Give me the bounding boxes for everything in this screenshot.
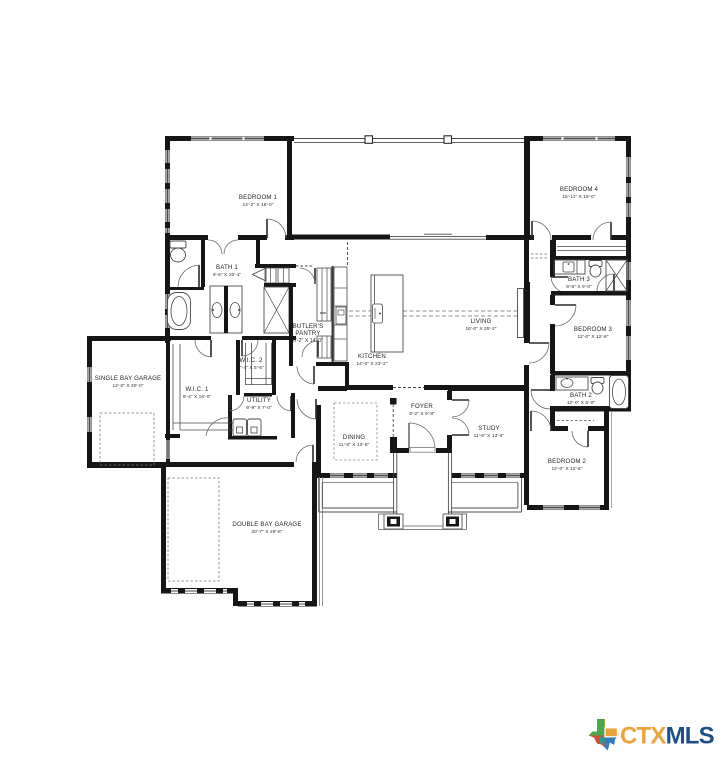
svg-text:BEDROOM 3: BEDROOM 3	[574, 326, 613, 333]
svg-text:BATH 3: BATH 3	[568, 276, 590, 283]
svg-text:BEDROOM 4: BEDROOM 4	[560, 186, 599, 193]
svg-text:FOYER: FOYER	[411, 403, 433, 410]
svg-text:KITCHEN: KITCHEN	[358, 353, 386, 360]
svg-text:11'-6" X 13'-6": 11'-6" X 13'-6"	[474, 433, 505, 439]
svg-text:9'-6" X 9'-0": 9'-6" X 9'-0"	[566, 284, 592, 290]
svg-text:15'-11" X 16'-0": 15'-11" X 16'-0"	[562, 194, 596, 200]
svg-text:BEDROOM 1: BEDROOM 1	[239, 194, 278, 201]
svg-text:9'-9" X 7'-0": 9'-9" X 7'-0"	[246, 405, 272, 411]
svg-text:CTXMLS: CTXMLS	[620, 723, 715, 750]
svg-text:DINING: DINING	[343, 434, 365, 441]
svg-text:14'-2" X 16'-0": 14'-2" X 16'-0"	[242, 202, 273, 208]
svg-text:W.I.C. 2: W.I.C. 2	[239, 357, 263, 364]
svg-text:DOUBLE BAY GARAGE: DOUBLE BAY GARAGE	[232, 521, 301, 528]
svg-text:12'-0" X 20'-0": 12'-0" X 20'-0"	[112, 383, 143, 389]
svg-text:UTILITY: UTILITY	[247, 397, 271, 404]
svg-text:BATH 1: BATH 1	[216, 264, 238, 271]
svg-text:12'-0" X 5'-0": 12'-0" X 5'-0"	[567, 400, 596, 406]
svg-text:9'-4" X 16'-0": 9'-4" X 16'-0"	[183, 394, 212, 400]
svg-text:SINGLE BAY GARAGE: SINGLE BAY GARAGE	[95, 375, 162, 382]
svg-text:12'-0" X 12'-6": 12'-0" X 12'-6"	[577, 334, 608, 340]
svg-text:BEDROOM 2: BEDROOM 2	[548, 458, 587, 465]
svg-text:20'-7" X 29'-8": 20'-7" X 29'-8"	[251, 529, 282, 535]
svg-text:BATH 2: BATH 2	[570, 392, 592, 399]
svg-text:14'-0" X 23'-2": 14'-0" X 23'-2"	[356, 361, 387, 367]
svg-text:W.I.C. 1: W.I.C. 1	[185, 386, 209, 393]
svg-text:7'-4" X 5'-6": 7'-4" X 5'-6"	[238, 365, 264, 371]
svg-text:BUTLER'S: BUTLER'S	[293, 323, 324, 330]
svg-text:STUDY: STUDY	[478, 425, 500, 432]
svg-text:6'-2" X 14'-0": 6'-2" X 14'-0"	[293, 338, 323, 344]
svg-text:LIVING: LIVING	[470, 318, 491, 325]
svg-text:16'-0" X 25'-2": 16'-0" X 25'-2"	[465, 326, 496, 332]
svg-text:9'-6" X 15'-1": 9'-6" X 15'-1"	[213, 272, 242, 278]
svg-text:12'-0" X 12'-6": 12'-0" X 12'-6"	[551, 466, 582, 472]
svg-text:11'-8" X 13'-8": 11'-8" X 13'-8"	[339, 442, 370, 448]
svg-text:PANTRY: PANTRY	[295, 330, 320, 337]
svg-text:9'-2" X 9'-8": 9'-2" X 9'-8"	[409, 411, 435, 417]
